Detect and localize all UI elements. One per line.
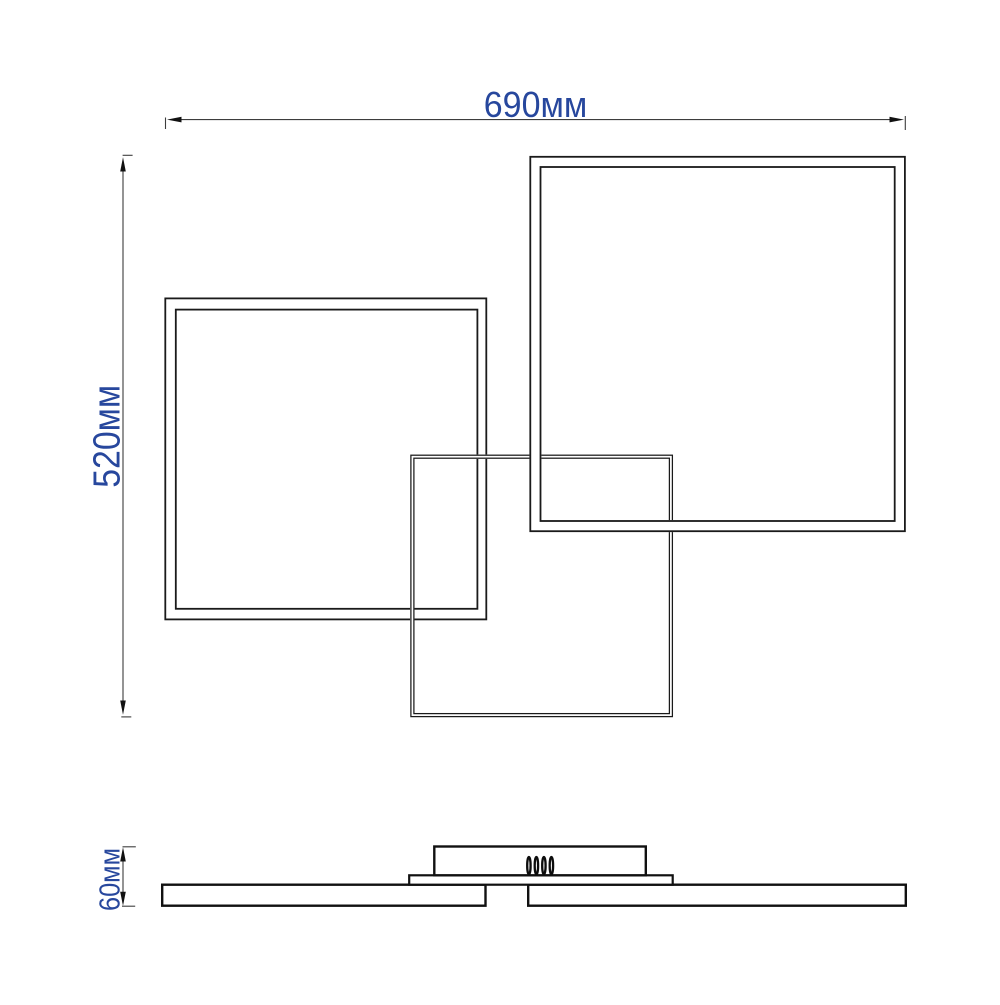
svg-text:690мм: 690мм bbox=[484, 84, 588, 125]
svg-text:520мм: 520мм bbox=[87, 385, 129, 488]
svg-text:60мм: 60мм bbox=[95, 848, 127, 911]
